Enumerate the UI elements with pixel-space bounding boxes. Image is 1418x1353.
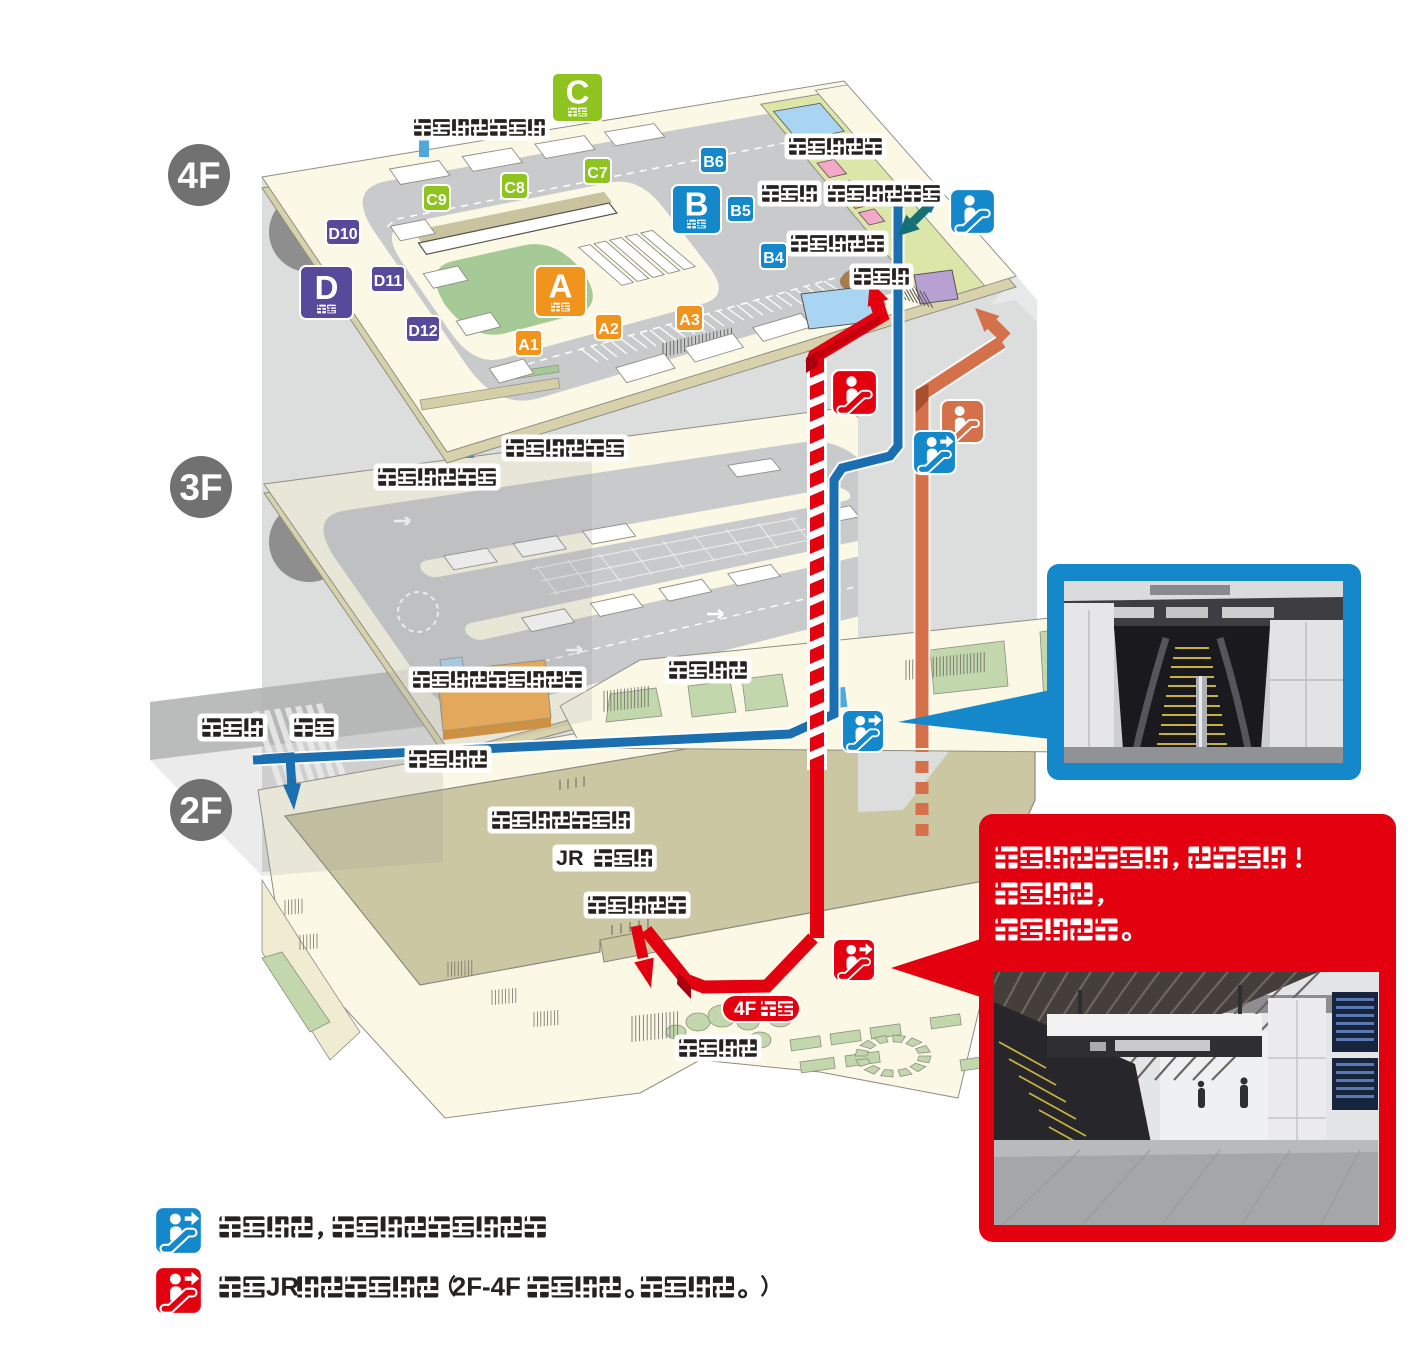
svg-text:4F: 4F bbox=[734, 999, 756, 1020]
svg-text:4F: 4F bbox=[177, 155, 220, 196]
svg-text:A2: A2 bbox=[598, 321, 619, 338]
svg-text:A3: A3 bbox=[679, 312, 700, 329]
svg-text:D10: D10 bbox=[328, 226, 357, 243]
svg-text:C: C bbox=[566, 73, 590, 110]
svg-text:D12: D12 bbox=[408, 323, 437, 340]
svg-text:2F: 2F bbox=[179, 790, 222, 831]
svg-text:C8: C8 bbox=[504, 180, 525, 197]
svg-text:A1: A1 bbox=[518, 337, 539, 354]
svg-text:C9: C9 bbox=[426, 192, 447, 209]
svg-text:B5: B5 bbox=[730, 203, 751, 220]
svg-text:A: A bbox=[549, 268, 573, 305]
svg-text:B4: B4 bbox=[763, 250, 784, 267]
svg-text:C7: C7 bbox=[587, 165, 608, 182]
svg-text:D: D bbox=[315, 269, 339, 306]
svg-text:B: B bbox=[685, 185, 709, 222]
svg-text:JR: JR bbox=[266, 1274, 299, 1302]
svg-text:D11: D11 bbox=[374, 273, 403, 290]
svg-text:3F: 3F bbox=[179, 467, 222, 508]
svg-text:JR: JR bbox=[556, 845, 584, 870]
svg-text:B6: B6 bbox=[703, 154, 724, 171]
svg-text:2F-4F: 2F-4F bbox=[452, 1274, 521, 1302]
